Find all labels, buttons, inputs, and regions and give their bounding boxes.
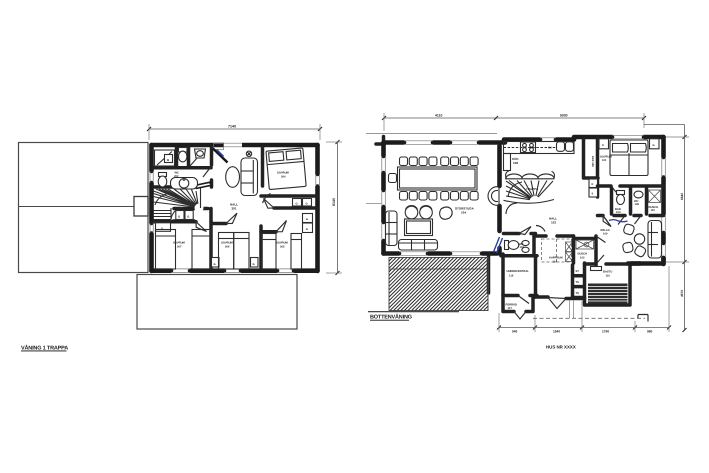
svg-text:110: 110 <box>651 209 656 212</box>
svg-text:UNDERCENTRAL: UNDERCENTRAL <box>507 270 530 273</box>
svg-text:TS: TS <box>576 292 580 295</box>
svg-text:8640: 8640 <box>680 193 684 200</box>
svg-text:TRAPPA: TRAPPA <box>526 187 539 191</box>
svg-text:G: G <box>253 263 255 266</box>
svg-text:K: K <box>592 183 594 186</box>
svg-text:KAPPRUM: KAPPRUM <box>549 257 563 260</box>
svg-text:SOVRUM: SOVRUM <box>276 242 289 245</box>
svg-text:1790: 1790 <box>602 330 609 334</box>
svg-text:ÖK: ÖK <box>548 146 552 150</box>
svg-text:BASTU: BASTU <box>603 271 612 274</box>
svg-text:ST: ST <box>576 270 580 273</box>
svg-text:109: 109 <box>603 233 608 236</box>
svg-text:104: 104 <box>461 211 466 215</box>
svg-text:105: 105 <box>635 203 640 206</box>
svg-text:G: G <box>214 263 216 266</box>
svg-text:KLK 106: KLK 106 <box>591 156 594 167</box>
svg-text:HUS NR XXXX: HUS NR XXXX <box>546 345 576 350</box>
svg-text:206: 206 <box>225 246 230 249</box>
svg-text:117: 117 <box>508 307 513 310</box>
svg-text:108: 108 <box>513 161 518 165</box>
svg-text:1540: 1540 <box>553 330 560 334</box>
svg-text:202: 202 <box>174 175 179 178</box>
svg-text:207: 207 <box>177 246 182 249</box>
svg-text:115: 115 <box>606 275 611 278</box>
svg-text:103: 103 <box>520 246 525 249</box>
svg-text:940: 940 <box>512 330 518 334</box>
svg-text:G: G <box>306 228 308 231</box>
svg-text:114: 114 <box>553 261 558 264</box>
svg-text:7140: 7140 <box>228 125 236 129</box>
svg-text:204: 204 <box>281 176 286 179</box>
svg-text:116: 116 <box>509 275 514 278</box>
svg-text:VÅNING 1 TRAPPA: VÅNING 1 TRAPPA <box>21 344 68 351</box>
svg-text:G: G <box>187 216 189 219</box>
svg-text:G: G <box>178 216 180 219</box>
svg-text:SOVRUM: SOVRUM <box>221 242 234 245</box>
svg-text:SOVRUM: SOVRUM <box>277 172 290 175</box>
svg-text:TS: TS <box>576 281 580 284</box>
svg-text:4110: 4110 <box>435 114 442 118</box>
svg-text:G: G <box>306 203 308 206</box>
svg-text:S: S <box>592 193 594 196</box>
svg-text:5030: 5030 <box>560 114 568 118</box>
svg-text:BOTTENVÅNING: BOTTENVÅNING <box>370 314 412 321</box>
svg-text:FÖRRÅD: FÖRRÅD <box>506 303 518 307</box>
svg-text:102: 102 <box>551 221 556 225</box>
svg-text:G: G <box>296 203 298 206</box>
svg-text:8140: 8140 <box>332 198 336 206</box>
svg-text:101: 101 <box>602 159 607 162</box>
svg-text:DUSCH: DUSCH <box>578 253 588 256</box>
svg-text:201: 201 <box>231 207 236 211</box>
svg-text:205: 205 <box>280 246 285 249</box>
svg-text:104: 104 <box>616 211 621 214</box>
svg-text:SOVRUM: SOVRUM <box>173 242 186 245</box>
svg-text:S: S <box>602 144 604 147</box>
svg-text:980: 980 <box>647 330 653 334</box>
svg-text:G: G <box>306 218 308 221</box>
svg-text:G: G <box>653 144 655 147</box>
svg-text:102: 102 <box>580 257 585 260</box>
svg-text:4570: 4570 <box>680 290 684 297</box>
